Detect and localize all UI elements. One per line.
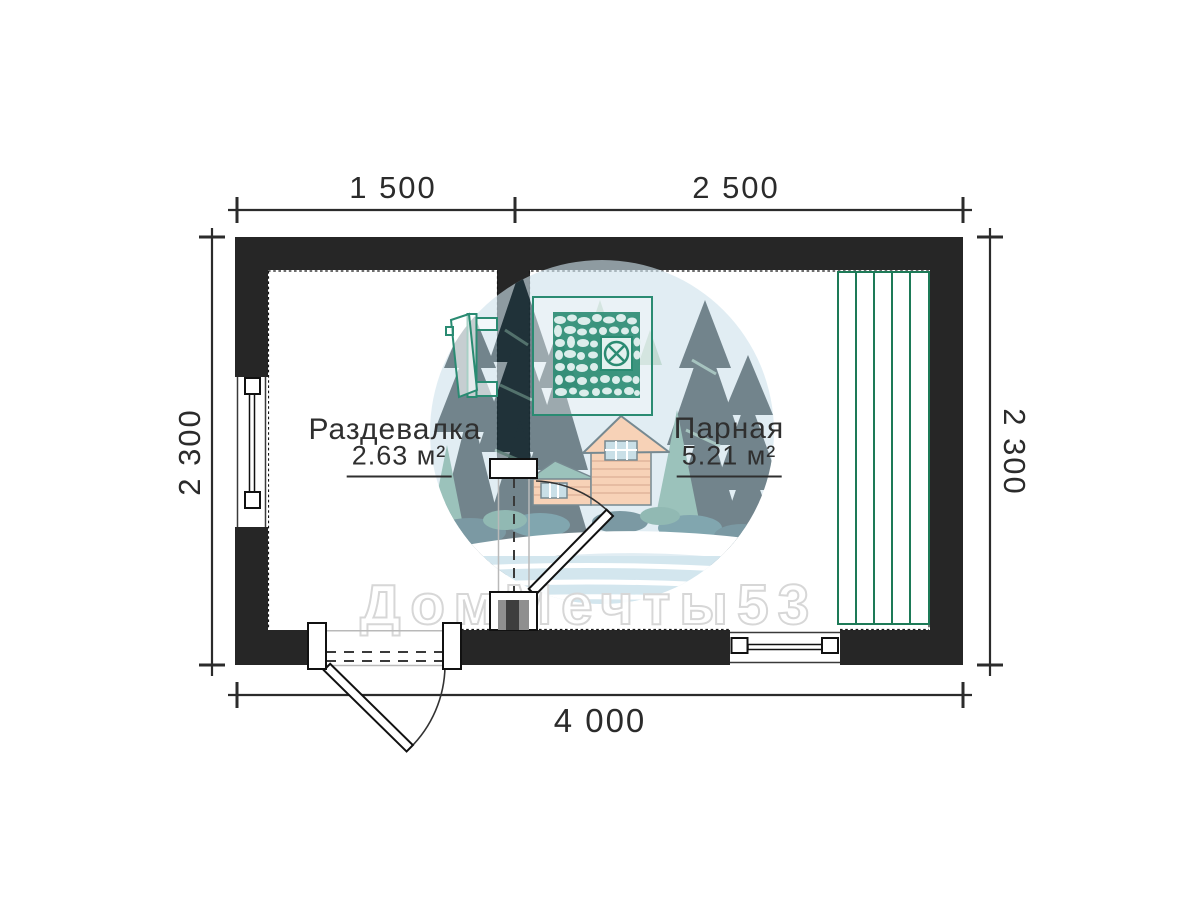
floor-plan-page: ДомМечты53 xyxy=(0,0,1200,900)
watermark-text: ДомМечты53 xyxy=(360,572,818,638)
company-logo xyxy=(0,0,1200,900)
